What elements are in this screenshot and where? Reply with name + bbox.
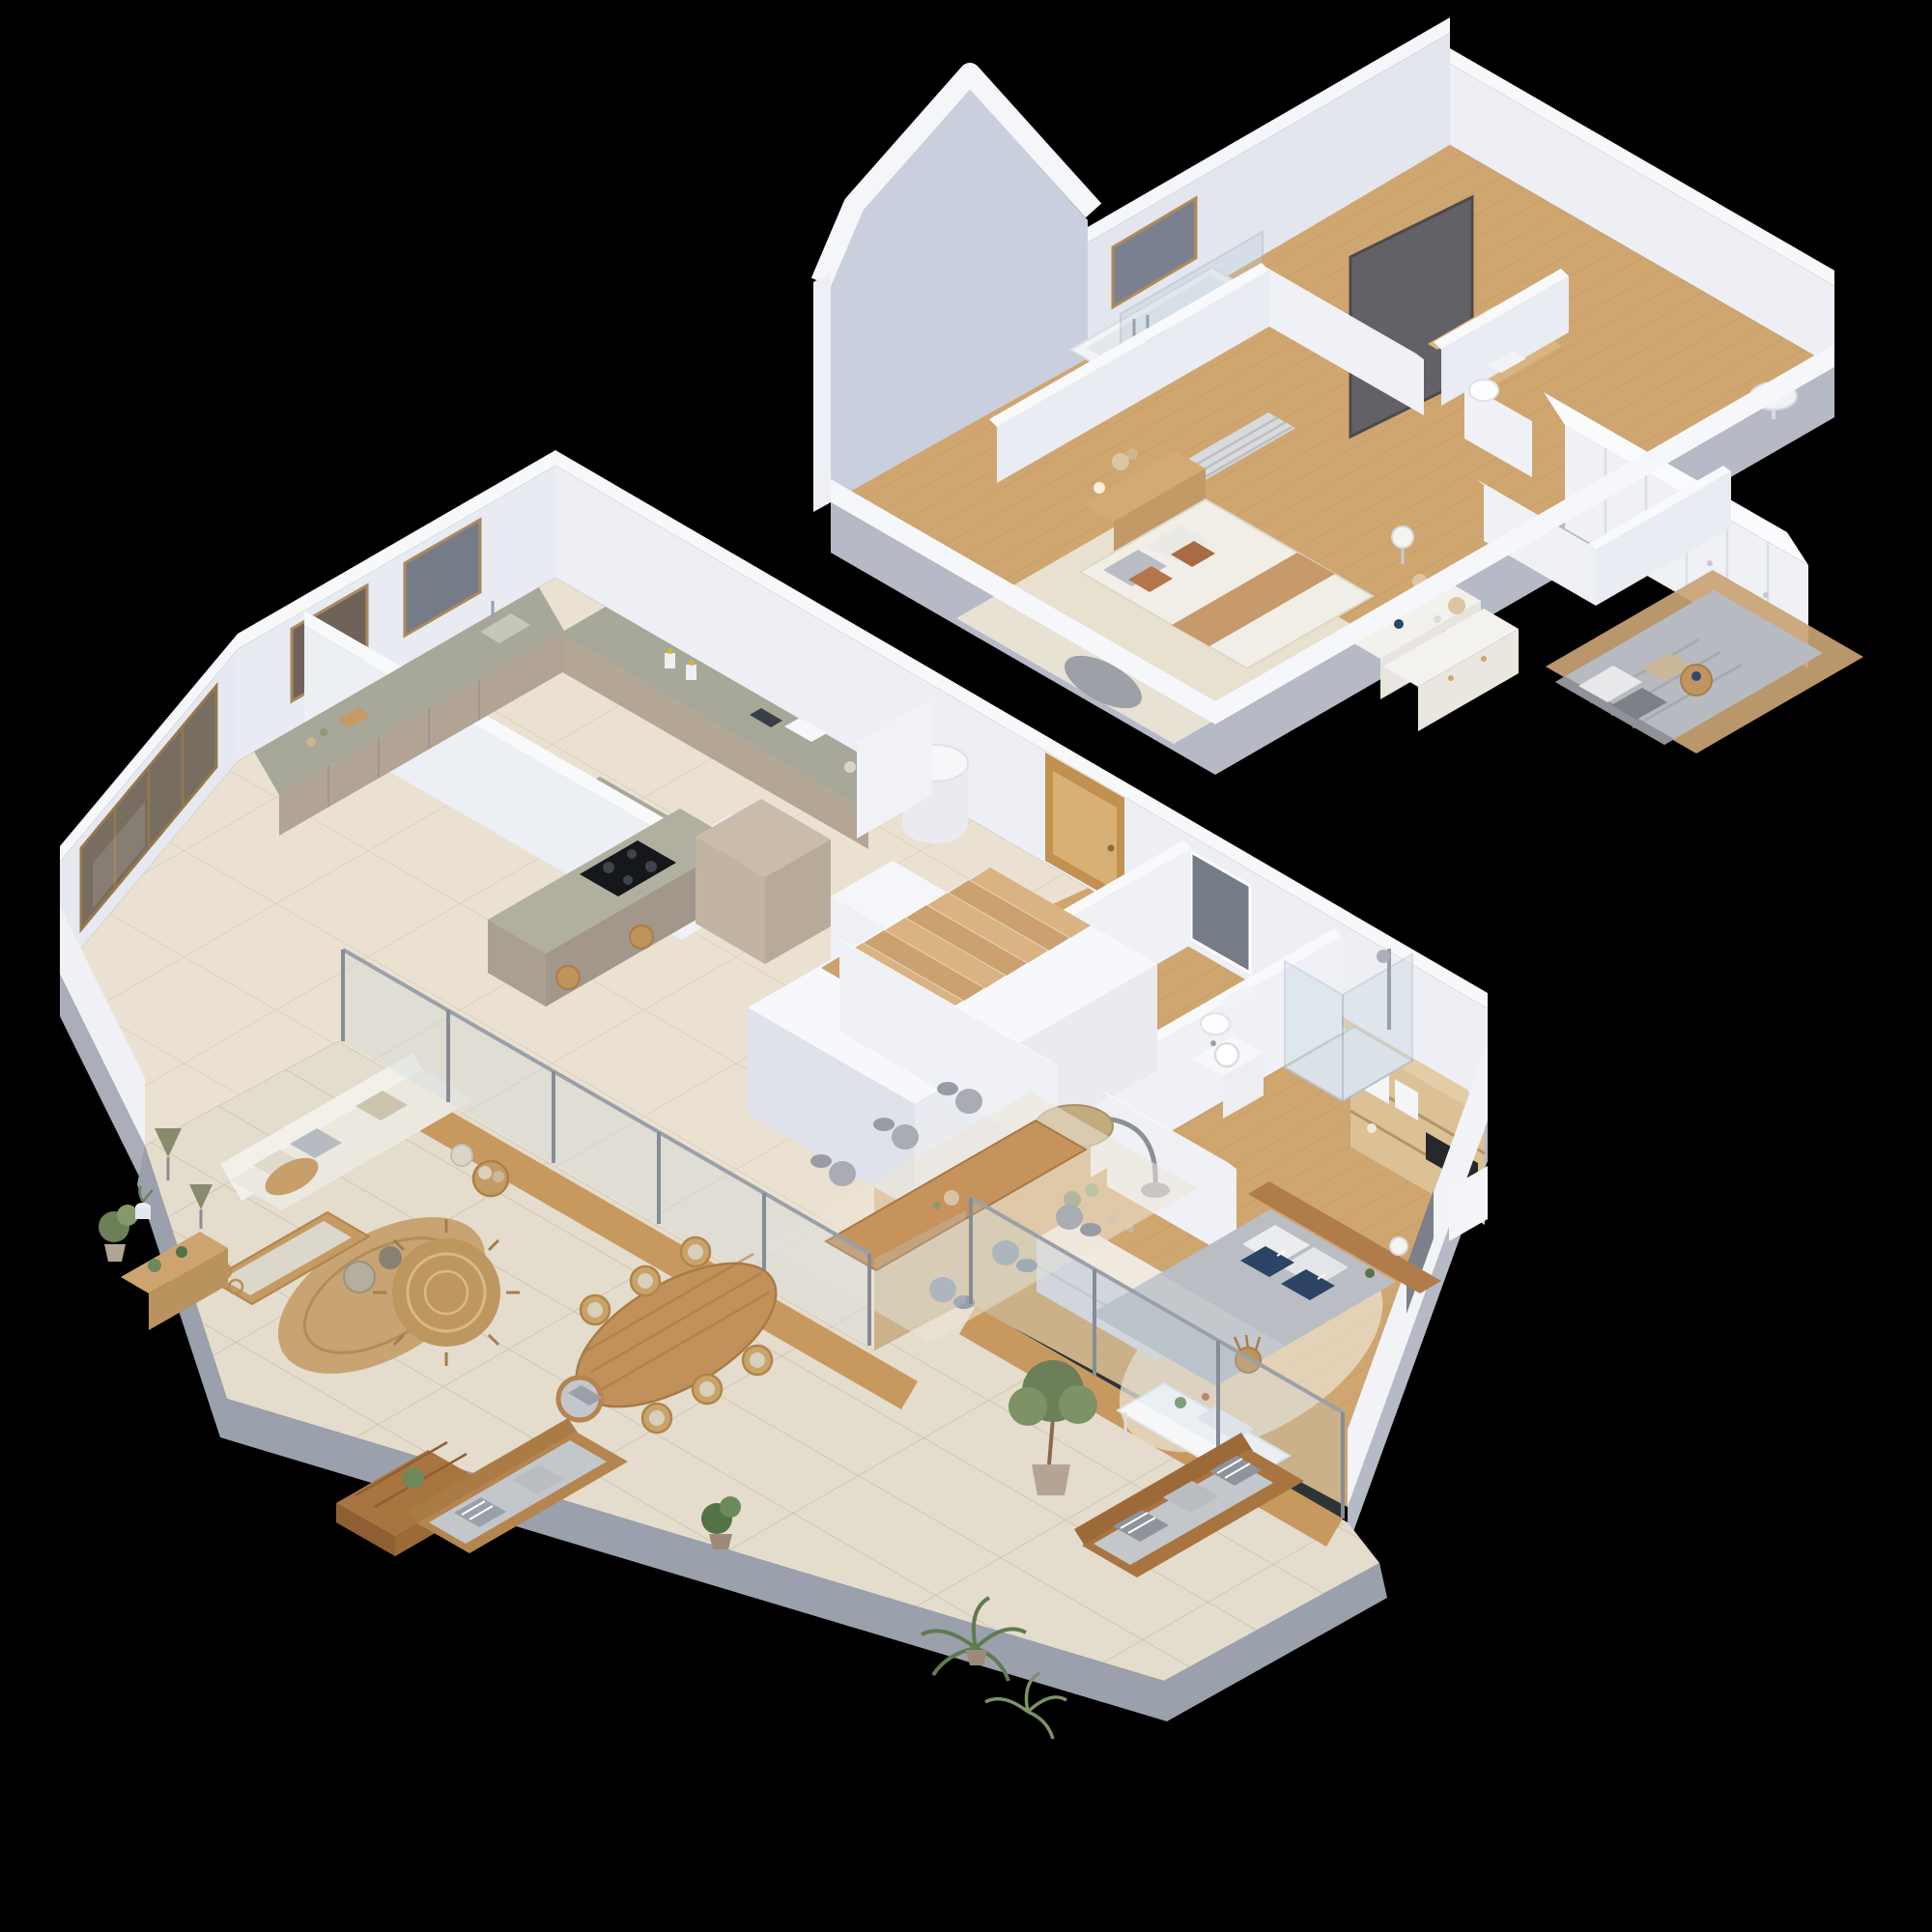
side-table: [451, 1145, 472, 1166]
wood-stool-1: [556, 966, 580, 989]
round-wood-side-table: [1681, 665, 1712, 696]
console-plant: [148, 1259, 161, 1272]
green-desk-lamp: [1365, 1268, 1375, 1278]
table-plant: [403, 1467, 424, 1489]
headboard-lamp: [1390, 1237, 1407, 1255]
glass-bottle: [1434, 615, 1441, 623]
round-coffee-table: [344, 1262, 375, 1293]
dining-chair: [892, 1124, 919, 1150]
basin-faucet: [1210, 1040, 1216, 1046]
dining-chair: [955, 1089, 982, 1114]
glass-jar: [844, 761, 856, 773]
blue-vase: [1394, 619, 1404, 629]
detergent-bottle-2: [686, 665, 696, 680]
door-handle: [1108, 845, 1115, 852]
blue-candle: [1691, 671, 1701, 681]
shower-head: [1377, 950, 1390, 963]
floor-plan-render: [0, 0, 1932, 1932]
herb-pot: [320, 728, 327, 736]
detergent-bottle: [665, 653, 675, 668]
floor-plan-stage: Photorealistic 3D isometric floor plan r…: [0, 0, 1932, 1932]
round-coffee-table-2: [379, 1246, 402, 1269]
folded-linen: [1367, 1123, 1377, 1133]
pampas-decor: [1448, 597, 1465, 614]
jute-sun-rug: [373, 1219, 520, 1366]
pillow-basket: [473, 1161, 508, 1196]
vase: [306, 737, 316, 747]
wood-stool-2: [630, 925, 653, 949]
table-lamp: [1094, 482, 1105, 494]
lounge-armchair: [558, 1378, 603, 1420]
dining-chair: [829, 1161, 856, 1186]
dining-chair: [1056, 1205, 1083, 1230]
pampas-centerpiece: [944, 1190, 959, 1206]
